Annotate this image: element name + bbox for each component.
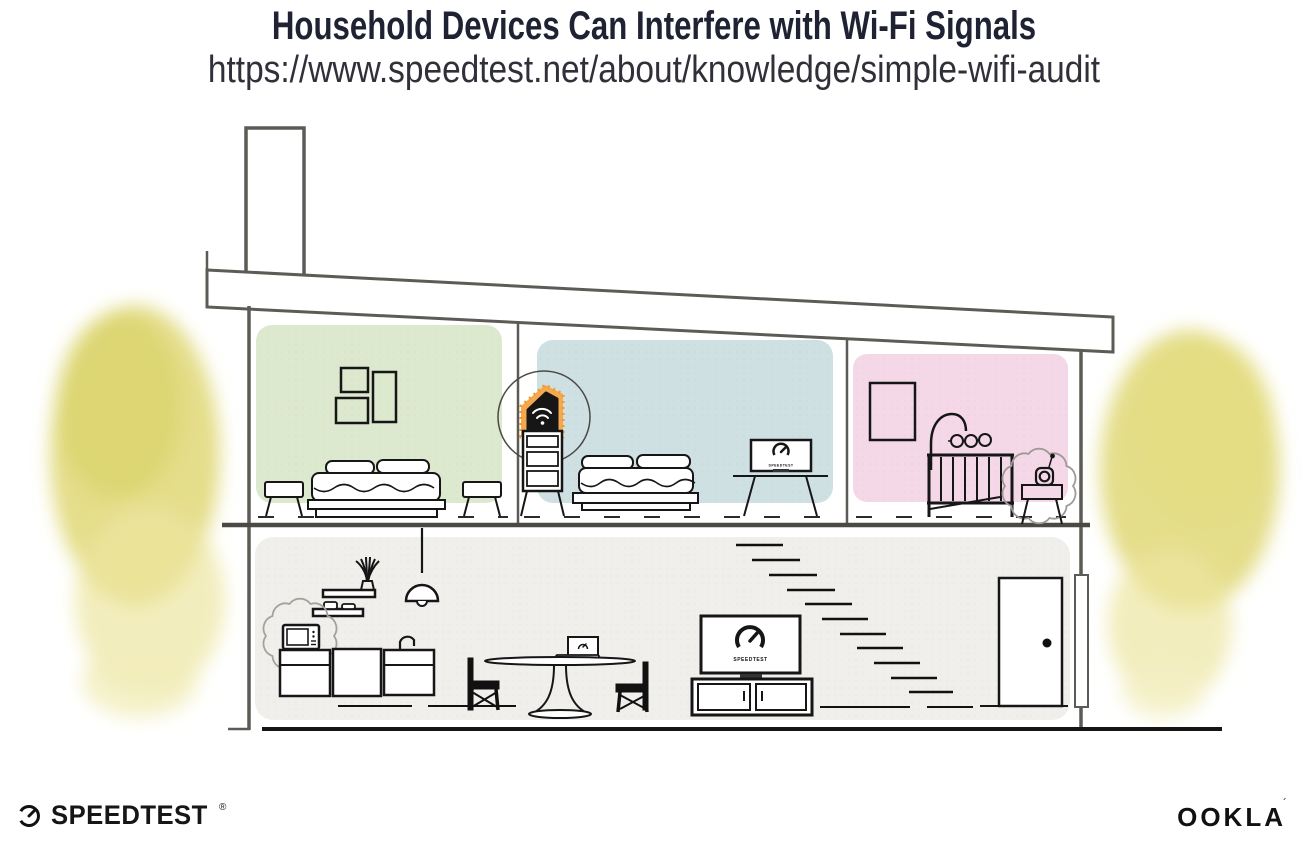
source-url: https://www.speedtest.net/about/knowledg… [78, 49, 1229, 93]
watercolor-bush-left [50, 305, 225, 718]
door-knob [1043, 639, 1052, 648]
tv-screen-label: SPEEDTEST [769, 464, 794, 468]
speedtest-gauge-icon [14, 801, 44, 831]
page-title: Household Devices Can Interfere with Wi-… [144, 4, 1164, 48]
chimney [246, 128, 304, 280]
watercolor-bush-right [1100, 330, 1280, 718]
bed [308, 460, 445, 517]
house-cutaway-illustration: SPEEDTEST [0, 0, 1308, 861]
tv-screen [701, 616, 800, 673]
ookla-wordmark: OOKLA [1177, 802, 1286, 832]
router-shelf-unit [521, 431, 564, 516]
speedtest-trademark: ® [219, 802, 226, 813]
speedtest-logo: SPEEDTEST® [14, 800, 230, 831]
header: Household Devices Can Interfere with Wi-… [0, 4, 1308, 93]
downspout [1075, 575, 1088, 729]
media-console [692, 679, 812, 715]
speedtest-wordmark: SPEEDTEST [51, 800, 208, 831]
ookla-logo: OOKLA´ [1177, 802, 1290, 833]
tv-screen-label: SPEEDTEST [733, 657, 767, 663]
cabinets [280, 649, 434, 696]
living-room-tv: SPEEDTEST [692, 616, 812, 715]
infographic-page: Household Devices Can Interfere with Wi-… [0, 0, 1308, 861]
microwave [283, 625, 319, 649]
ookla-trademark: ´ [1283, 796, 1287, 810]
